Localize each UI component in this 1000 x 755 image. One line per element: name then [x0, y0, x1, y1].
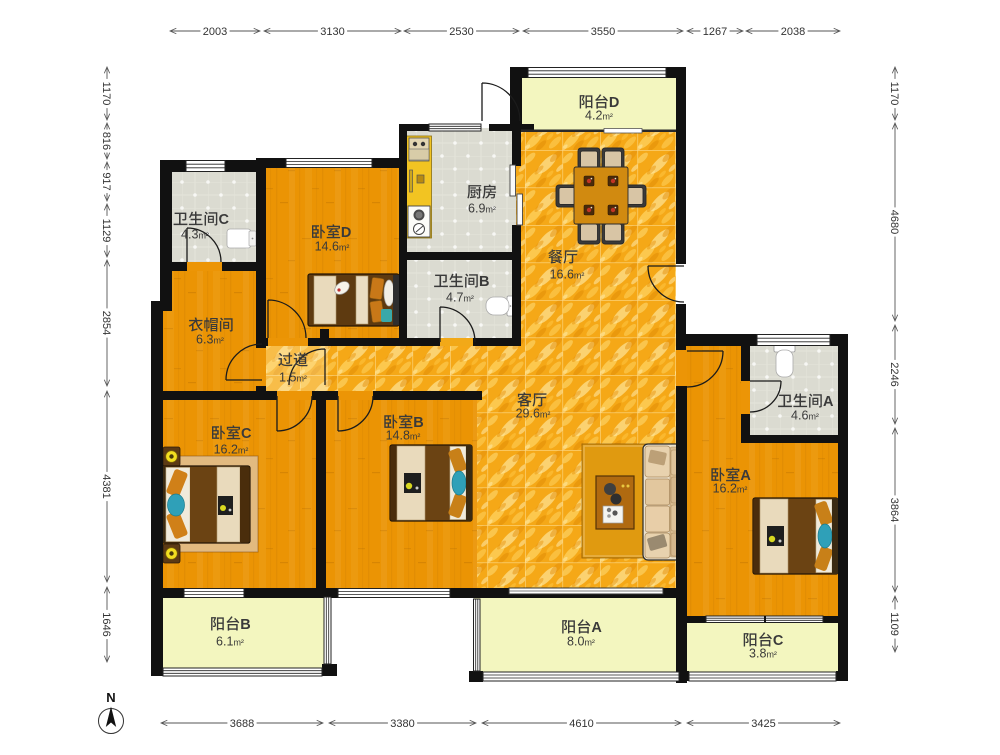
svg-text:C: C: [241, 426, 252, 442]
svg-text:C: C: [219, 212, 230, 228]
svg-text:4680: 4680: [888, 210, 900, 234]
svg-text:2246: 2246: [888, 362, 900, 386]
svg-text:1267: 1267: [703, 26, 727, 38]
svg-text:2854: 2854: [100, 311, 112, 335]
svg-text:14.6m²: 14.6m²: [315, 239, 350, 253]
svg-text:1170: 1170: [100, 82, 112, 106]
svg-text:D: D: [341, 225, 351, 241]
svg-text:3380: 3380: [390, 718, 414, 730]
svg-text:B: B: [240, 617, 250, 633]
svg-text:16.2m²: 16.2m²: [713, 481, 748, 495]
svg-text:4.7m²: 4.7m²: [446, 290, 474, 304]
svg-text:4.2m²: 4.2m²: [585, 108, 613, 122]
svg-text:917: 917: [100, 172, 112, 190]
svg-text:4610: 4610: [569, 718, 593, 730]
svg-text:6.3m²: 6.3m²: [196, 332, 224, 346]
svg-text:6.1m²: 6.1m²: [216, 634, 244, 648]
svg-text:3864: 3864: [888, 498, 900, 522]
svg-text:1646: 1646: [100, 612, 112, 636]
svg-text:16.6m²: 16.6m²: [550, 267, 585, 281]
svg-text:3130: 3130: [320, 26, 344, 38]
svg-text:3550: 3550: [591, 26, 615, 38]
svg-text:A: A: [823, 394, 834, 410]
svg-text:4.3m²: 4.3m²: [181, 227, 209, 241]
svg-text:4.6m²: 4.6m²: [791, 408, 819, 422]
svg-text:2003: 2003: [203, 26, 227, 38]
svg-text:6.9m²: 6.9m²: [468, 201, 496, 215]
svg-text:3688: 3688: [230, 718, 254, 730]
svg-text:N: N: [106, 690, 115, 705]
svg-text:1170: 1170: [888, 82, 900, 106]
svg-text:3.8m²: 3.8m²: [749, 646, 777, 660]
svg-text:14.8m²: 14.8m²: [386, 428, 421, 442]
svg-text:A: A: [740, 468, 751, 484]
svg-text:8.0m²: 8.0m²: [567, 634, 595, 648]
svg-text:29.6m²: 29.6m²: [516, 406, 551, 420]
svg-text:B: B: [479, 274, 489, 290]
svg-text:816: 816: [100, 132, 112, 150]
svg-text:1.5m²: 1.5m²: [279, 370, 307, 384]
svg-text:2038: 2038: [781, 26, 805, 38]
svg-text:2530: 2530: [449, 26, 473, 38]
svg-text:D: D: [609, 95, 619, 111]
svg-text:1129: 1129: [100, 219, 112, 243]
svg-text:A: A: [591, 620, 602, 636]
svg-text:1109: 1109: [888, 612, 900, 636]
svg-text:16.2m²: 16.2m²: [214, 442, 249, 456]
svg-text:C: C: [773, 633, 784, 649]
svg-text:4381: 4381: [100, 474, 112, 498]
svg-text:3425: 3425: [751, 718, 775, 730]
svg-text:B: B: [413, 415, 423, 431]
